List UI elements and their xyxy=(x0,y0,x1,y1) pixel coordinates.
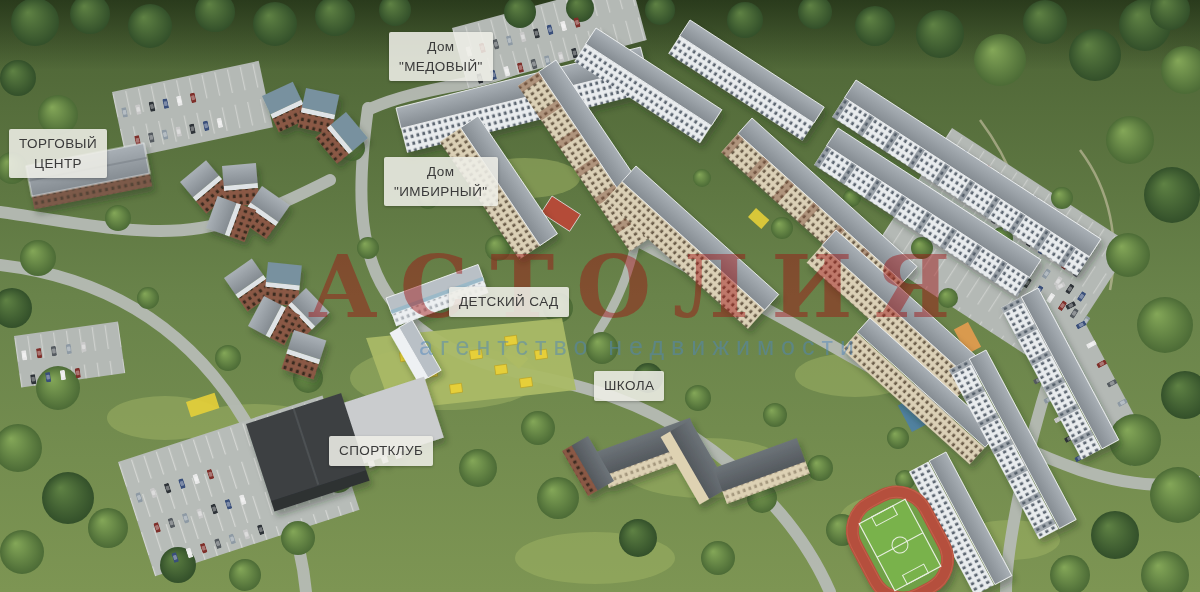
label-text: Дом xyxy=(399,37,483,57)
label-text: "МЕДОВЫЙ" xyxy=(399,57,483,77)
label-kindergarten: ДЕТСКИЙ САД xyxy=(449,287,569,317)
label-dom-medovy: Дом "МЕДОВЫЙ" xyxy=(389,32,493,81)
label-sport-club: СПОРТКЛУБ xyxy=(329,436,433,466)
masterplan-render xyxy=(0,0,1200,592)
label-text: ЦЕНТР xyxy=(19,154,97,174)
label-text: ТОРГОВЫЙ xyxy=(19,134,97,154)
label-text: СПОРТКЛУБ xyxy=(339,441,423,461)
label-dom-imbirny: Дом "ИМБИРНЫЙ" xyxy=(384,157,498,206)
label-text: ДЕТСКИЙ САД xyxy=(459,292,559,312)
masterplan-scene: АСТОЛИЯ агентство недвижимости Дом "МЕДО… xyxy=(0,0,1200,592)
label-school: ШКОЛА xyxy=(594,371,664,401)
label-shopping-center: ТОРГОВЫЙ ЦЕНТР xyxy=(9,129,107,178)
label-text: "ИМБИРНЫЙ" xyxy=(394,182,488,202)
label-text: Дом xyxy=(394,162,488,182)
label-text: ШКОЛА xyxy=(604,376,654,396)
